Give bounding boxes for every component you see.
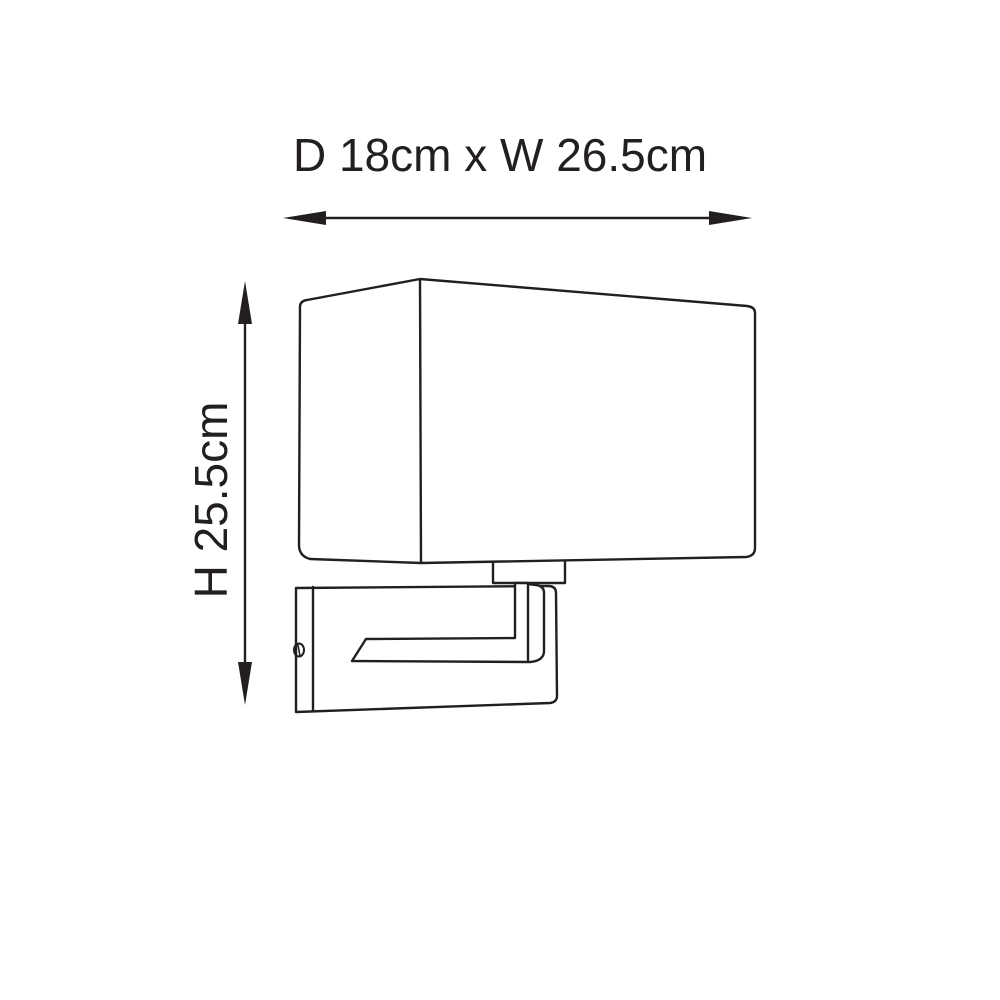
product-dimension-diagram: D 18cm x W 26.5cm H 25.5cm: [0, 0, 1000, 1000]
lamp-holder-block: [493, 561, 565, 583]
arrowhead-down-icon: [238, 662, 252, 705]
mounting-bracket: [294, 561, 565, 712]
lamp-shade-outline: [299, 279, 755, 563]
width-dimension-arrow: [283, 211, 752, 225]
arrowhead-up-icon: [238, 281, 252, 324]
arrowhead-right-icon: [709, 211, 752, 225]
arrowhead-left-icon: [283, 211, 326, 225]
height-dimension-arrow: [238, 281, 252, 705]
lamp-shade-front-edge: [420, 280, 421, 563]
lamp-shade: [299, 279, 755, 563]
wall-light-line-drawing: [0, 0, 1000, 1000]
